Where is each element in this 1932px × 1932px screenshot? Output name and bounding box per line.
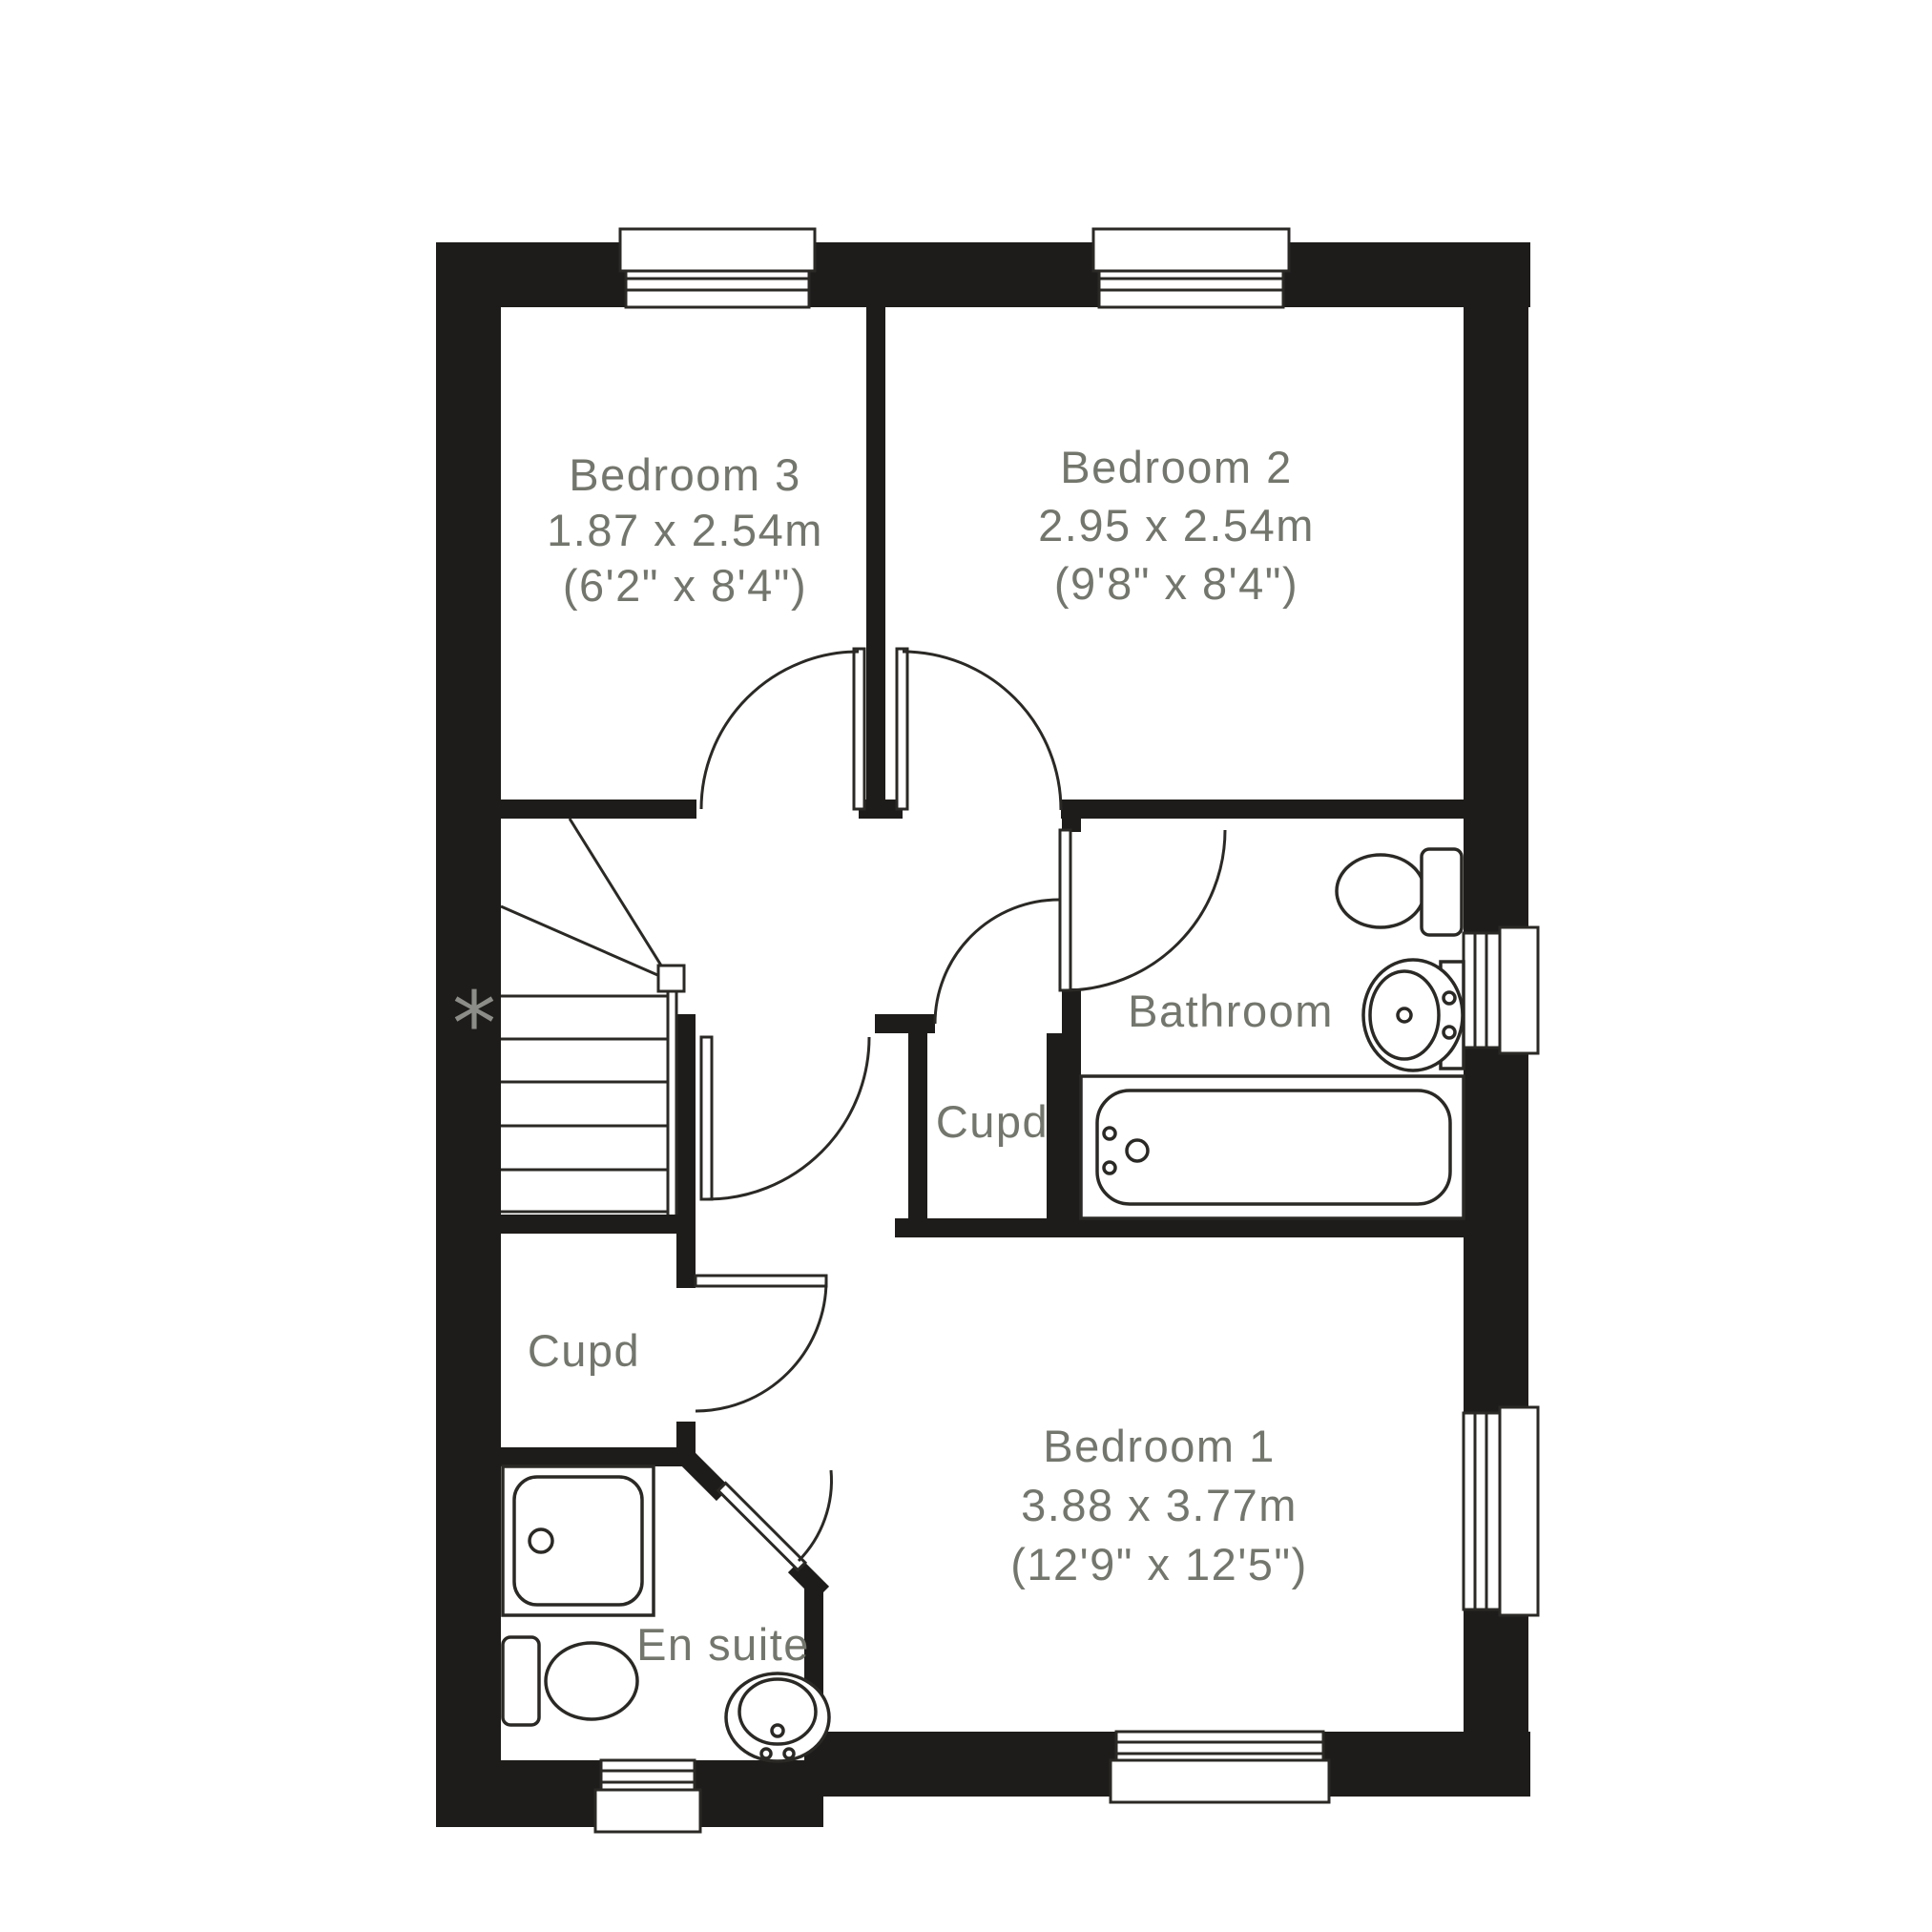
bedroom2-dimensions-imperial: (9'8" x 8'4"): [1054, 558, 1298, 609]
door-bathroom: [1060, 830, 1225, 990]
door-leaf-bedroom3: [854, 649, 864, 809]
wall-ensuite-diagonal-stub-top: [681, 1452, 723, 1494]
sink-plug-icon: [1398, 1008, 1411, 1022]
window-bedroom1-right: [1464, 1407, 1538, 1615]
wall-stairs-bottom: [501, 1215, 696, 1234]
window-bedroom2-top: [1093, 229, 1289, 307]
door-leaf-bedroom1: [701, 1037, 712, 1199]
wall-cupboard-upper-left: [908, 1033, 927, 1237]
stair-winder-line: [501, 906, 671, 981]
wall-bathroom-left-bottom-stub: [1062, 988, 1081, 1033]
door-leaf-ensuite: [718, 1483, 805, 1569]
wall-stairs-hall-divider: [676, 1014, 696, 1224]
toilet-cistern-icon: [503, 1637, 539, 1725]
ensuite-label: En suite: [636, 1619, 810, 1670]
floorplan-drawing: Bedroom 3 1.87 x 2.54m (6'2" x 8'4") Bed…: [0, 0, 1932, 1932]
bedroom1-dimensions-imperial: (12'9" x 12'5"): [1010, 1539, 1308, 1589]
staircase: [501, 819, 684, 1215]
wall-bedroom3-stairs: [501, 800, 696, 819]
bathroom-label: Bathroom: [1128, 986, 1334, 1036]
door-arc-cupboard-upper: [935, 900, 1059, 1024]
door-cupboard-upper: [935, 900, 1059, 1024]
door-arc-bedroom1: [707, 1037, 869, 1199]
window-bathroom-right: [1464, 927, 1538, 1053]
window-bedroom3-top: [620, 229, 815, 307]
stairs-asterisk-marker: *: [452, 973, 496, 1075]
bedroom2-label: Bedroom 2: [1060, 442, 1292, 492]
toilet-icon: [1337, 855, 1424, 927]
bedroom1-label: Bedroom 1: [1043, 1421, 1275, 1471]
bedroom1-dimensions-metric: 3.88 x 3.77m: [1021, 1480, 1298, 1530]
stair-newel-post: [658, 966, 684, 991]
floorplan-page: Bedroom 3 1.87 x 2.54m (6'2" x 8'4") Bed…: [0, 0, 1932, 1932]
bedroom3-label: Bedroom 3: [569, 449, 800, 500]
bedroom2-dimensions-metric: 2.95 x 2.54m: [1038, 500, 1315, 551]
stair-winder-line: [570, 819, 671, 981]
window-ensuite-bottom: [595, 1760, 700, 1832]
sink-tap-icon: [1444, 1027, 1455, 1038]
door-bedroom1: [701, 1037, 869, 1199]
cupboard-lower-label: Cupd: [528, 1325, 640, 1376]
toilet-icon: [546, 1643, 637, 1719]
bath-tap-icon: [1104, 1128, 1115, 1139]
sink-plug-icon: [772, 1725, 783, 1736]
sink-tap-icon: [784, 1749, 794, 1758]
door-arc-bathroom: [1065, 830, 1225, 990]
toilet-cistern-icon: [1422, 849, 1462, 935]
door-ensuite: [718, 1470, 832, 1570]
wall-bathroom-top: [1061, 800, 1464, 819]
outer-wall-top: [436, 242, 1530, 307]
door-leaf-cupboard-lower: [696, 1276, 826, 1286]
bedroom3-dimensions-metric: 1.87 x 2.54m: [547, 505, 823, 555]
door-cupboard-lower: [696, 1276, 826, 1411]
door-bedroom2: [897, 649, 1061, 810]
bathtub-icon: [1097, 1091, 1450, 1204]
door-arc-cupboard-lower: [696, 1280, 826, 1411]
cupboard-upper-label: Cupd: [936, 1096, 1049, 1147]
door-arc-bedroom3: [701, 652, 859, 809]
sink-tap-icon: [761, 1749, 771, 1758]
wall-cupboard-upper-right: [1047, 1033, 1081, 1237]
wall-ensuite-top: [501, 1447, 677, 1466]
door-bedroom3: [701, 649, 864, 809]
wall-cupboard-upper-top: [875, 1014, 935, 1033]
ensuite-fixtures: [503, 1466, 829, 1761]
bath-plug-icon: [1127, 1140, 1148, 1161]
bedroom3-dimensions-imperial: (6'2" x 8'4"): [563, 560, 807, 611]
door-arc-bedroom2: [903, 652, 1061, 810]
wall-bedroom1-top: [895, 1218, 1464, 1237]
shower-drain-icon: [530, 1529, 552, 1552]
door-arc-ensuite: [799, 1470, 831, 1561]
bath-tap-icon: [1104, 1162, 1115, 1174]
sink-tap-icon: [1444, 992, 1455, 1004]
wall-cupboard-lower-right-upper: [676, 1224, 696, 1288]
door-leaf-bathroom: [1060, 830, 1070, 990]
wall-bedroom3-bedroom2-divider: [866, 307, 885, 804]
window-bedroom1-bottom: [1111, 1732, 1329, 1802]
door-leaf-bedroom2: [897, 649, 907, 809]
